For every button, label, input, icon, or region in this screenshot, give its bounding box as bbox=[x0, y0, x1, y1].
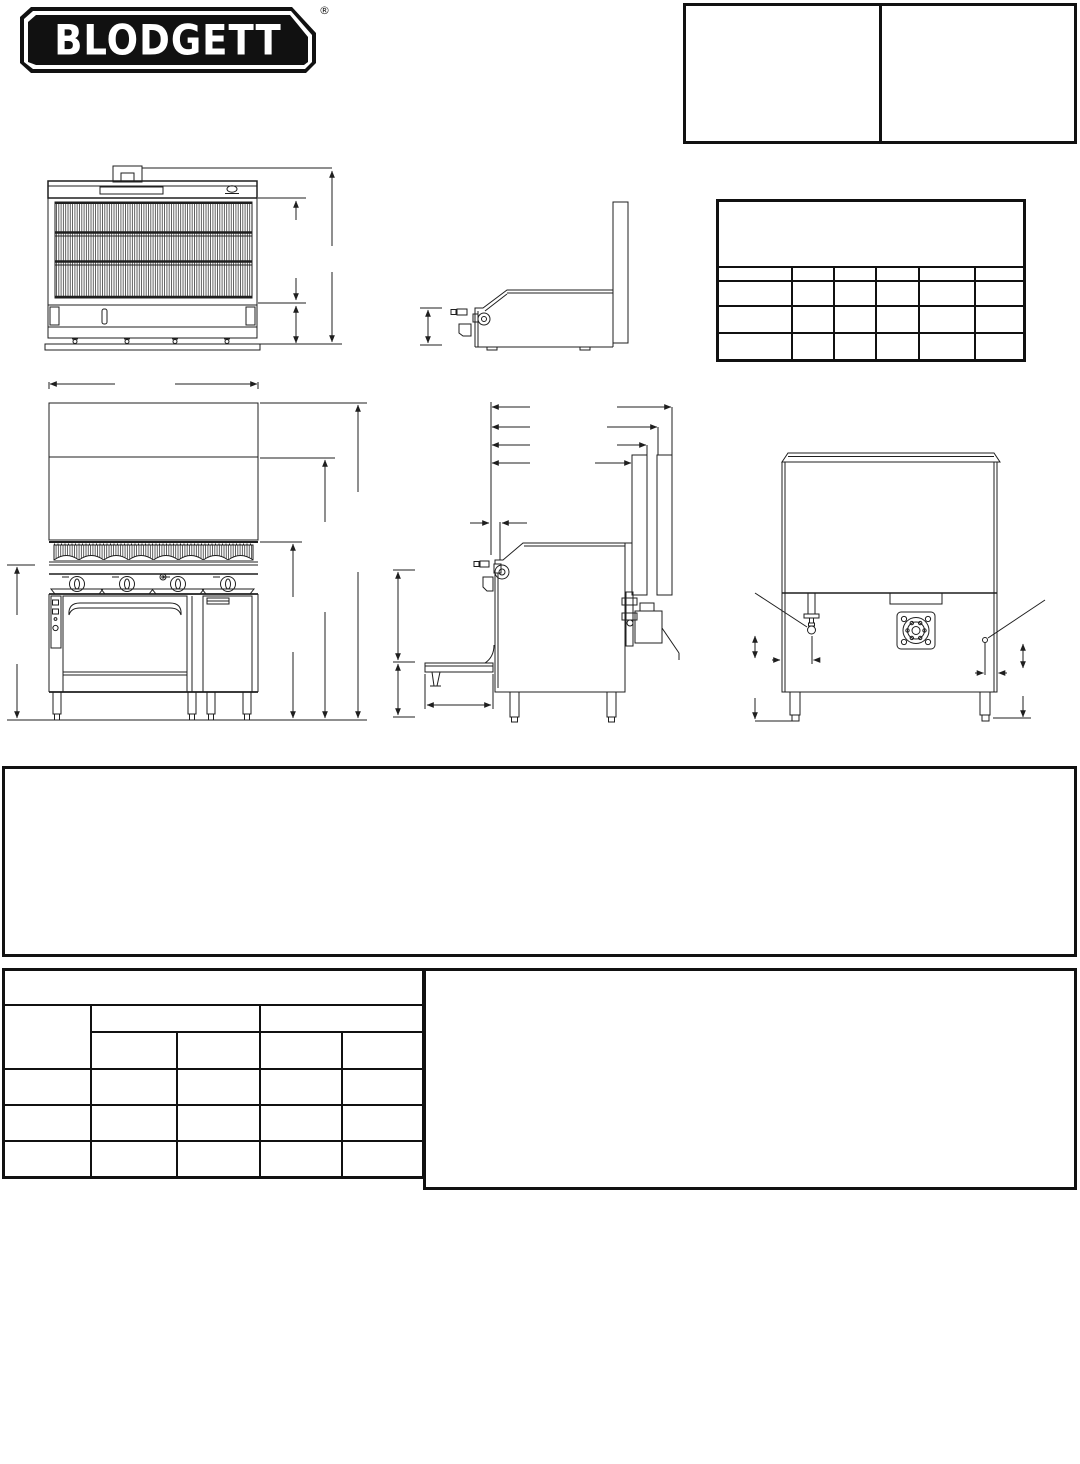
range-side-view-drawing bbox=[390, 398, 700, 733]
spec-table-cell bbox=[792, 281, 834, 306]
bottom-table-cell bbox=[177, 1105, 260, 1141]
broiler-front-view-drawing bbox=[10, 160, 350, 355]
spec-table-cell bbox=[718, 281, 792, 306]
registered-trademark-symbol: ® bbox=[319, 4, 330, 17]
bottom-table-cell bbox=[260, 1105, 342, 1141]
broiler-strip bbox=[49, 542, 258, 574]
spec-table-header-cell bbox=[834, 267, 876, 281]
burner-knob bbox=[202, 577, 254, 595]
burner-spec-table bbox=[716, 199, 1026, 362]
bottom-table-cell bbox=[4, 1069, 91, 1105]
spec-table-cell bbox=[919, 333, 975, 361]
bottom-table-cell bbox=[4, 1141, 91, 1178]
spec-table-cell bbox=[876, 281, 919, 306]
bottom-table-cell bbox=[177, 1141, 260, 1178]
bottom-right-box bbox=[423, 968, 1077, 1190]
spec-table-cell bbox=[834, 306, 876, 333]
spec-table-header-cell bbox=[792, 267, 834, 281]
bottom-table-cell bbox=[91, 1069, 177, 1105]
bottom-table-cell bbox=[4, 1105, 91, 1141]
open-oven-door bbox=[425, 645, 494, 686]
oven-and-cabinet bbox=[49, 594, 258, 720]
bottom-table-cell bbox=[260, 1069, 342, 1105]
spec-table-cell bbox=[975, 306, 1025, 333]
header-form-right-cell bbox=[882, 6, 1075, 141]
back-panel bbox=[782, 453, 1000, 692]
spec-table-cell bbox=[834, 281, 876, 306]
bottom-table-cell bbox=[91, 1105, 177, 1141]
bottom-table-cell bbox=[177, 1069, 260, 1105]
spec-table-cell bbox=[876, 306, 919, 333]
bottom-table-title-row bbox=[4, 970, 424, 1006]
pilot-hole bbox=[983, 638, 988, 643]
spec-table-cell bbox=[919, 306, 975, 333]
burner-knob bbox=[101, 577, 153, 595]
range-front-view-drawing bbox=[5, 372, 390, 727]
spec-table-cell bbox=[718, 333, 792, 361]
bottom-table-subheader bbox=[177, 1032, 260, 1069]
bottom-table-group-header bbox=[260, 1005, 424, 1032]
control-panel bbox=[49, 574, 258, 594]
blodgett-logo: BLODGETT bbox=[20, 7, 316, 73]
spec-table-cell bbox=[975, 333, 1025, 361]
legs bbox=[53, 692, 251, 720]
bottom-table-subheader bbox=[91, 1032, 177, 1069]
spec-table-header-cell bbox=[919, 267, 975, 281]
logo-border-gap: BLODGETT bbox=[24, 11, 312, 69]
bottom-table-cell bbox=[91, 1141, 177, 1178]
range-rear-view-drawing bbox=[735, 432, 1080, 732]
broiler-body bbox=[45, 166, 260, 350]
spec-table-header-cell bbox=[718, 267, 792, 281]
spec-sheet-page: BLODGETT ® bbox=[0, 0, 1080, 1464]
logo-wordmark: BLODGETT bbox=[54, 19, 282, 60]
spec-table-cell bbox=[975, 281, 1025, 306]
burner-knob bbox=[51, 577, 103, 595]
spec-table-cell bbox=[792, 333, 834, 361]
broiler-side-view-drawing bbox=[395, 180, 685, 352]
spec-table-cell bbox=[834, 333, 876, 361]
header-form-boxes bbox=[683, 3, 1077, 144]
legs bbox=[790, 692, 990, 721]
gas-inlet-flange bbox=[897, 612, 935, 649]
bottom-table-cell bbox=[260, 1141, 342, 1178]
bottom-spec-table bbox=[2, 968, 425, 1179]
bottom-table-subheader bbox=[260, 1032, 342, 1069]
body bbox=[451, 202, 628, 350]
bottom-table-left-header bbox=[4, 1005, 91, 1069]
spec-table-cell bbox=[919, 281, 975, 306]
notes-box bbox=[2, 766, 1077, 957]
spec-table-header-cell bbox=[876, 267, 919, 281]
leader-lines bbox=[755, 593, 1045, 638]
risers bbox=[632, 455, 672, 595]
logo-badge: BLODGETT bbox=[28, 15, 308, 65]
bottom-table-cell bbox=[342, 1141, 424, 1178]
spec-table-title-block bbox=[718, 201, 1025, 268]
riser bbox=[49, 403, 258, 540]
feet-bolts bbox=[72, 339, 230, 344]
body bbox=[474, 543, 632, 722]
bottom-table-group-header bbox=[91, 1005, 260, 1032]
bottom-table-cell bbox=[342, 1105, 424, 1141]
gas-valve bbox=[804, 593, 819, 634]
bottom-table-cell bbox=[342, 1069, 424, 1105]
spec-table-cell bbox=[876, 333, 919, 361]
gas-connections bbox=[622, 592, 679, 660]
burner-knob bbox=[152, 577, 204, 595]
bottom-table-subheader bbox=[342, 1032, 424, 1069]
spec-table-header-cell bbox=[975, 267, 1025, 281]
spec-table-cell bbox=[792, 306, 834, 333]
spec-table-cell bbox=[718, 306, 792, 333]
dimension-lines bbox=[420, 308, 442, 345]
dimension-lines bbox=[393, 402, 672, 717]
header-form-left-cell bbox=[686, 6, 882, 141]
